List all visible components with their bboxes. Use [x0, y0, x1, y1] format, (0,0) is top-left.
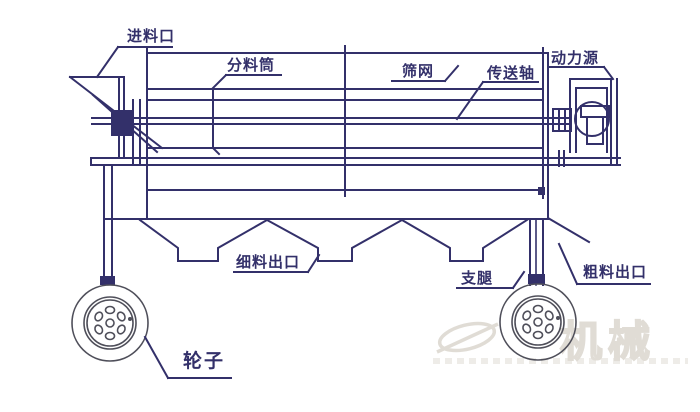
label-distributor-drum: 分料筒	[227, 58, 275, 73]
shaft-bearing-block	[111, 110, 132, 136]
label-power-source: 动力源	[551, 51, 599, 66]
label-coarse-outlet: 粗料出口	[583, 265, 647, 280]
feed-inlet-part	[70, 77, 162, 165]
watermark-text: 机械	[560, 318, 656, 365]
power-source-part	[538, 79, 617, 195]
label-drive-shaft: 传送轴	[487, 66, 535, 81]
trommel-screen-diagram: 机械	[0, 0, 700, 412]
label-feed-inlet: 进料口	[127, 29, 175, 44]
left-wheel	[72, 285, 148, 361]
right-wheel	[500, 284, 576, 360]
drive-shaft-part	[92, 118, 570, 124]
label-screen-mesh: 筛网	[402, 64, 434, 79]
support-legs-part	[100, 165, 545, 285]
fine-outlet-hoppers	[140, 220, 527, 261]
coarse-outlet-chute	[548, 218, 589, 242]
label-support-leg: 支腿	[461, 271, 493, 286]
label-wheel: 轮子	[183, 352, 225, 371]
label-fine-outlet: 细料出口	[236, 255, 300, 270]
